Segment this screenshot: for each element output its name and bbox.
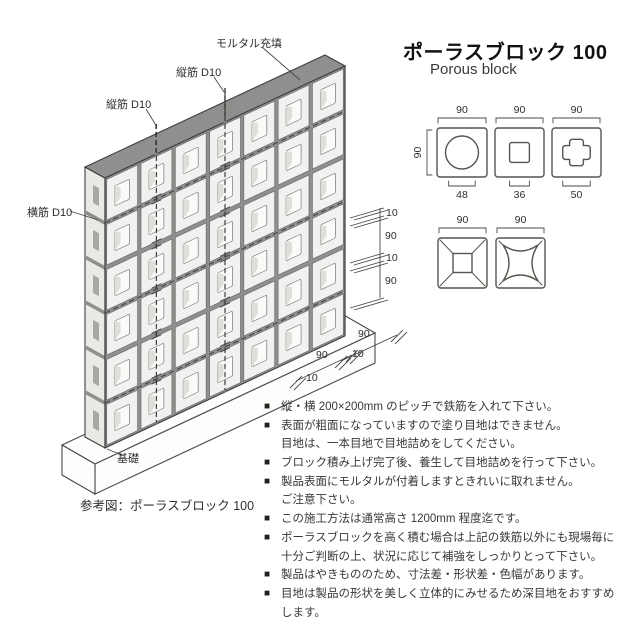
note-line: ■します。 xyxy=(264,604,638,623)
page-subtitle: Porous block xyxy=(430,61,517,78)
end-hole-slot xyxy=(93,230,99,251)
dim-b5-top: 90 xyxy=(515,214,527,226)
notes-list: ■縦・横 200×200mm のピッチで鉄筋を入れて下さい。■表面が粗面になって… xyxy=(264,398,638,622)
label-foundation: 基礎 xyxy=(117,450,139,466)
bullet-square-icon: ■ xyxy=(264,473,281,492)
circle-hole-icon xyxy=(446,136,479,169)
note-text: 十分ご判断の上、状況に応じて補強をしっかりとって下さい。 xyxy=(281,548,602,567)
page: 10 90 10 90 90 10 90 10 xyxy=(0,0,640,640)
dim-b1-top: 90 xyxy=(456,104,468,116)
dim-bottom-upper-10: 10 xyxy=(352,348,364,360)
note-line: ■この施工方法は通常高さ 1200mm 程度迄です。 xyxy=(264,510,638,529)
note-text: ポーラスブロックを高く積む場合は上記の鉄筋以外にも現場毎に xyxy=(281,529,614,548)
dim-right-2: 90 xyxy=(385,230,397,242)
note-line: ■表面が粗面になっていますので塗り目地はできません。 xyxy=(264,417,638,436)
bullet-square-icon: ■ xyxy=(264,417,281,436)
diagram-caption: 参考図：ポーラスブロック 100 xyxy=(80,495,254,514)
note-text: 表面が粗面になっていますので塗り目地はできません。 xyxy=(281,417,568,436)
note-line: ■ご注意下さい。 xyxy=(264,491,638,510)
label-mortar-fill: モルタル充填 xyxy=(216,35,282,51)
dim-bottom-lower-10: 10 xyxy=(306,372,318,384)
end-hole-slot xyxy=(93,320,99,341)
dim-right-1: 10 xyxy=(386,207,398,219)
dim-b1-bottom: 48 xyxy=(456,189,468,201)
bullet-square-icon: ■ xyxy=(264,529,281,548)
square-hole-icon xyxy=(510,143,530,163)
note-line: ■目地は、一本目地で目地詰めをしてください。 xyxy=(264,435,638,454)
dim-right-3: 10 xyxy=(386,252,398,264)
dim-b2-top: 90 xyxy=(514,104,526,116)
dim-bottom-upper-90: 90 xyxy=(358,328,370,340)
note-line: ■目地は製品の形状を美しく立体的にみせるため深目地をおすすめ xyxy=(264,585,638,604)
end-hole-slot xyxy=(93,365,99,386)
note-text: します。 xyxy=(281,604,326,623)
note-line: ■製品表面にモルタルが付着しますときれいに取れません。 xyxy=(264,473,638,492)
note-text: 目地は製品の形状を美しく立体的にみせるため深目地をおすすめ xyxy=(281,585,615,604)
note-line: ■十分ご判断の上、状況に応じて補強をしっかりとって下さい。 xyxy=(264,548,638,567)
dim-right-4: 90 xyxy=(385,275,397,287)
note-line: ■ポーラスブロックを高く積む場合は上記の鉄筋以外にも現場毎に xyxy=(264,529,638,548)
end-hole-slot xyxy=(93,275,99,296)
end-hole-slot xyxy=(93,410,99,431)
bullet-square-icon: ■ xyxy=(264,585,281,604)
note-text: 縦・横 200×200mm のピッチで鉄筋を入れて下さい。 xyxy=(281,398,558,417)
dim-b3-top: 90 xyxy=(571,104,583,116)
bullet-square-icon: ■ xyxy=(264,454,281,473)
right-dimension-chain: 10 90 10 90 xyxy=(350,207,398,310)
note-text: ご注意下さい。 xyxy=(281,491,362,510)
dim-b4-top: 90 xyxy=(457,214,469,226)
dim-b2-bottom: 36 xyxy=(514,189,526,201)
label-horizontal-rebar: 横筋 D10 xyxy=(27,204,72,220)
note-text: この施工方法は通常高さ 1200mm 程度迄です。 xyxy=(281,510,526,529)
label-vertical-rebar-2: 縦筋 D10 xyxy=(106,96,151,112)
note-text: 製品はやきもののため、寸法差・形状差・色幅があります。 xyxy=(281,566,590,585)
bullet-square-icon: ■ xyxy=(264,566,281,585)
pyramid-inner-square-icon xyxy=(453,254,472,273)
dim-b3-bottom: 50 xyxy=(571,189,583,201)
note-line: ■縦・横 200×200mm のピッチで鉄筋を入れて下さい。 xyxy=(264,398,638,417)
end-hole-slot xyxy=(93,185,99,206)
note-line: ■ブロック積み上げ完了後、養生して目地詰めを行って下さい。 xyxy=(264,454,638,473)
note-line: ■製品はやきもののため、寸法差・形状差・色幅があります。 xyxy=(264,566,638,585)
dim-bottom-lower-90: 90 xyxy=(316,349,328,361)
label-vertical-rebar-1: 縦筋 D10 xyxy=(176,64,221,80)
note-text: 製品表面にモルタルが付着しますときれいに取れません。 xyxy=(281,473,580,492)
bullet-square-icon: ■ xyxy=(264,510,281,529)
note-text: ブロック積み上げ完了後、養生して目地詰めを行って下さい。 xyxy=(281,454,602,473)
dim-b1-left: 90 xyxy=(412,147,424,159)
note-text: 目地は、一本目地で目地詰めをしてください。 xyxy=(281,435,522,454)
block-type-diagrams: 90 90 90 90 48 36 50 90 90 xyxy=(412,104,601,288)
bullet-square-icon: ■ xyxy=(264,398,281,417)
